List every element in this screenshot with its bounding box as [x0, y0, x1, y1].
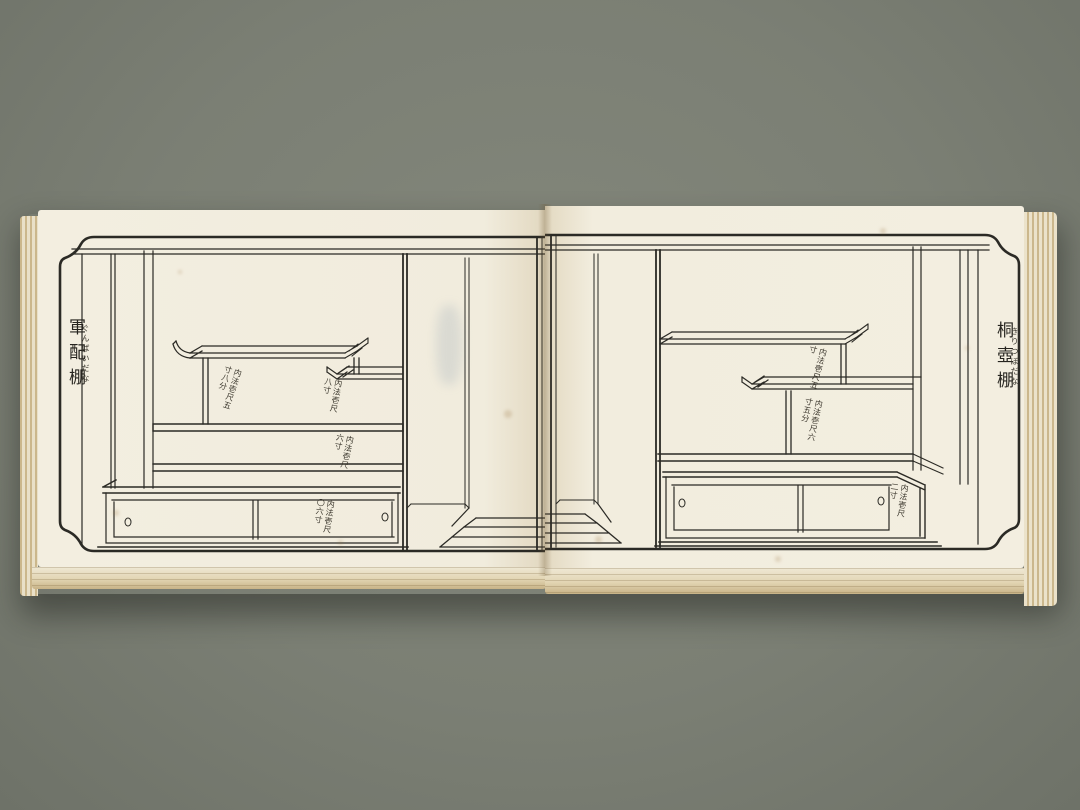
right-page: 桐壺棚 きりつぼだな 内法壱尺五寸 内法壱尺六寸五分 内法壱尺二寸 — [545, 206, 1024, 568]
foxing-spot — [178, 270, 182, 274]
foxing-spot — [113, 510, 119, 516]
foxing-spot — [880, 228, 886, 234]
right-page-stack-edge — [1024, 212, 1057, 606]
left-page-title-furigana: ぐんばいだな — [80, 324, 91, 416]
foxing-spot — [775, 556, 781, 562]
ink-smudge — [436, 305, 462, 385]
kiritsubo-dana-drawing — [545, 206, 1024, 568]
bottom-page-edges-right — [545, 568, 1024, 594]
foxing-spot — [338, 540, 343, 545]
book-gutter — [538, 204, 552, 576]
photo-background: 軍配棚 ぐんばいだな 内法壱尺五寸八分 内法壱尺八寸 内法壱尺六寸 内法壱尺〇六… — [0, 0, 1080, 810]
right-page-title-furigana: きりつぼだな — [1009, 327, 1020, 419]
foxing-spot — [504, 410, 512, 418]
left-page: 軍配棚 ぐんばいだな 内法壱尺五寸八分 内法壱尺八寸 内法壱尺六寸 内法壱尺〇六… — [38, 210, 545, 567]
foxing-spot — [595, 536, 602, 543]
left-page-stack-edge — [20, 216, 38, 596]
bottom-page-edges-left — [32, 567, 546, 589]
foxing-spot — [965, 346, 969, 350]
